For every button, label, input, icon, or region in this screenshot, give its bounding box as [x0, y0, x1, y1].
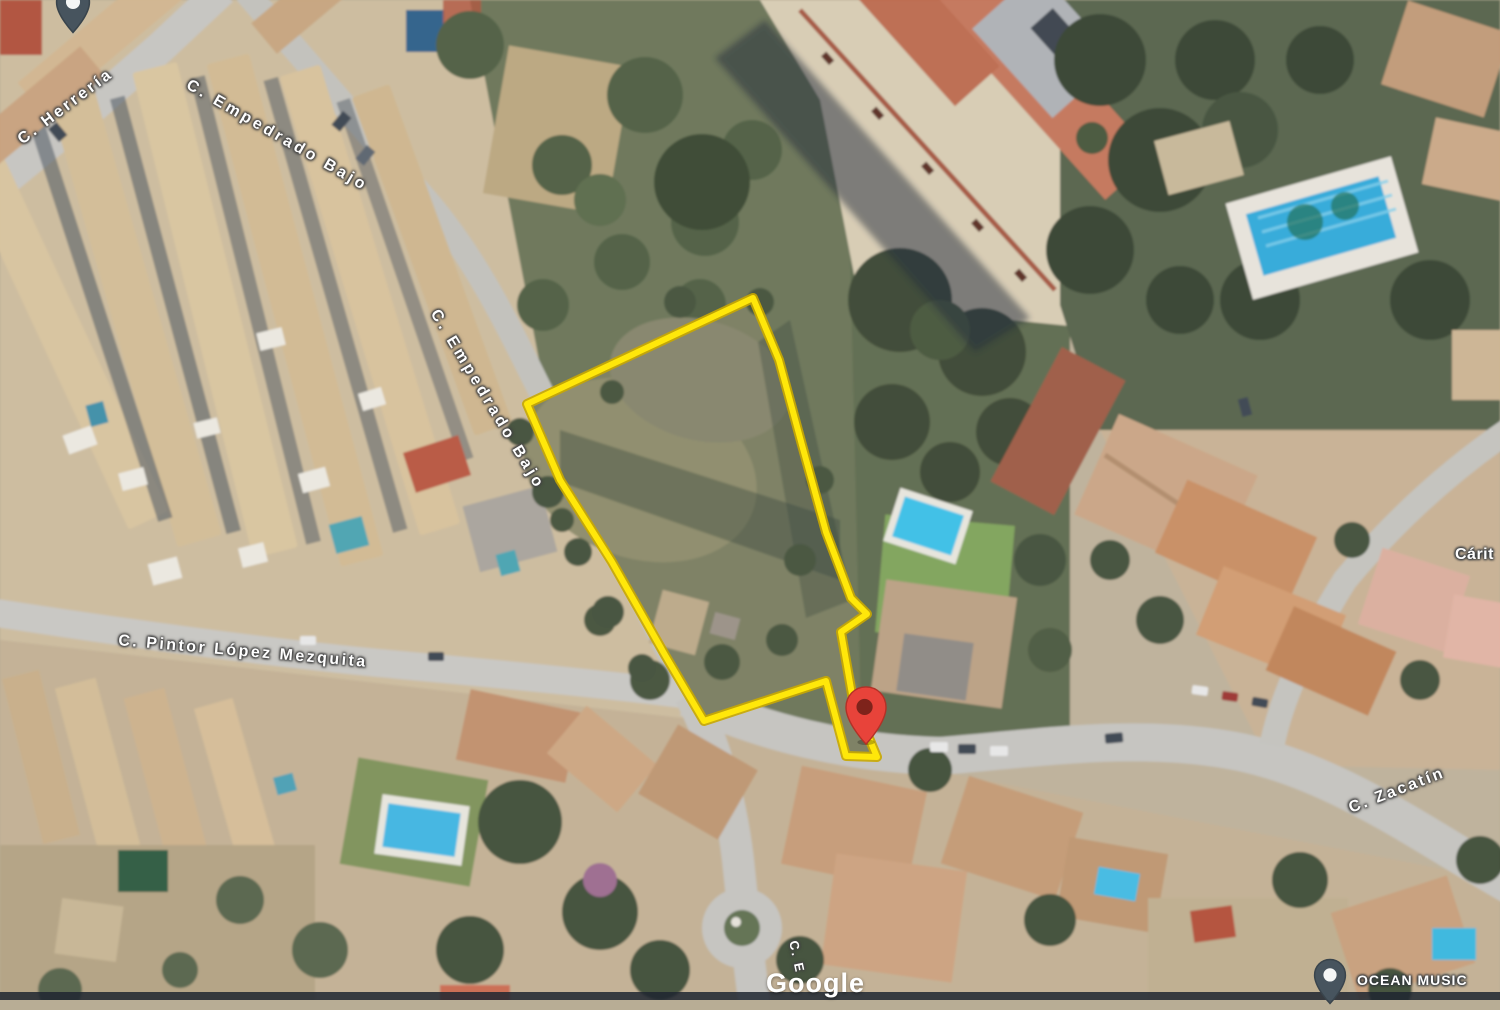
pin-body: [846, 687, 886, 744]
satellite-imagery: [0, 0, 1500, 1000]
selected-location-pin[interactable]: [843, 685, 889, 746]
poi-marker-ocean-music[interactable]: [1312, 958, 1348, 1005]
pin-dot: [856, 699, 872, 715]
poi-label-caritas[interactable]: Cárit: [1455, 546, 1494, 564]
pin-dot: [1323, 968, 1336, 981]
poi-marker-top-left[interactable]: [54, 0, 92, 34]
poi-label-ocean-music[interactable]: OCEAN MUSIC: [1357, 972, 1468, 988]
google-watermark: Google: [766, 968, 865, 999]
